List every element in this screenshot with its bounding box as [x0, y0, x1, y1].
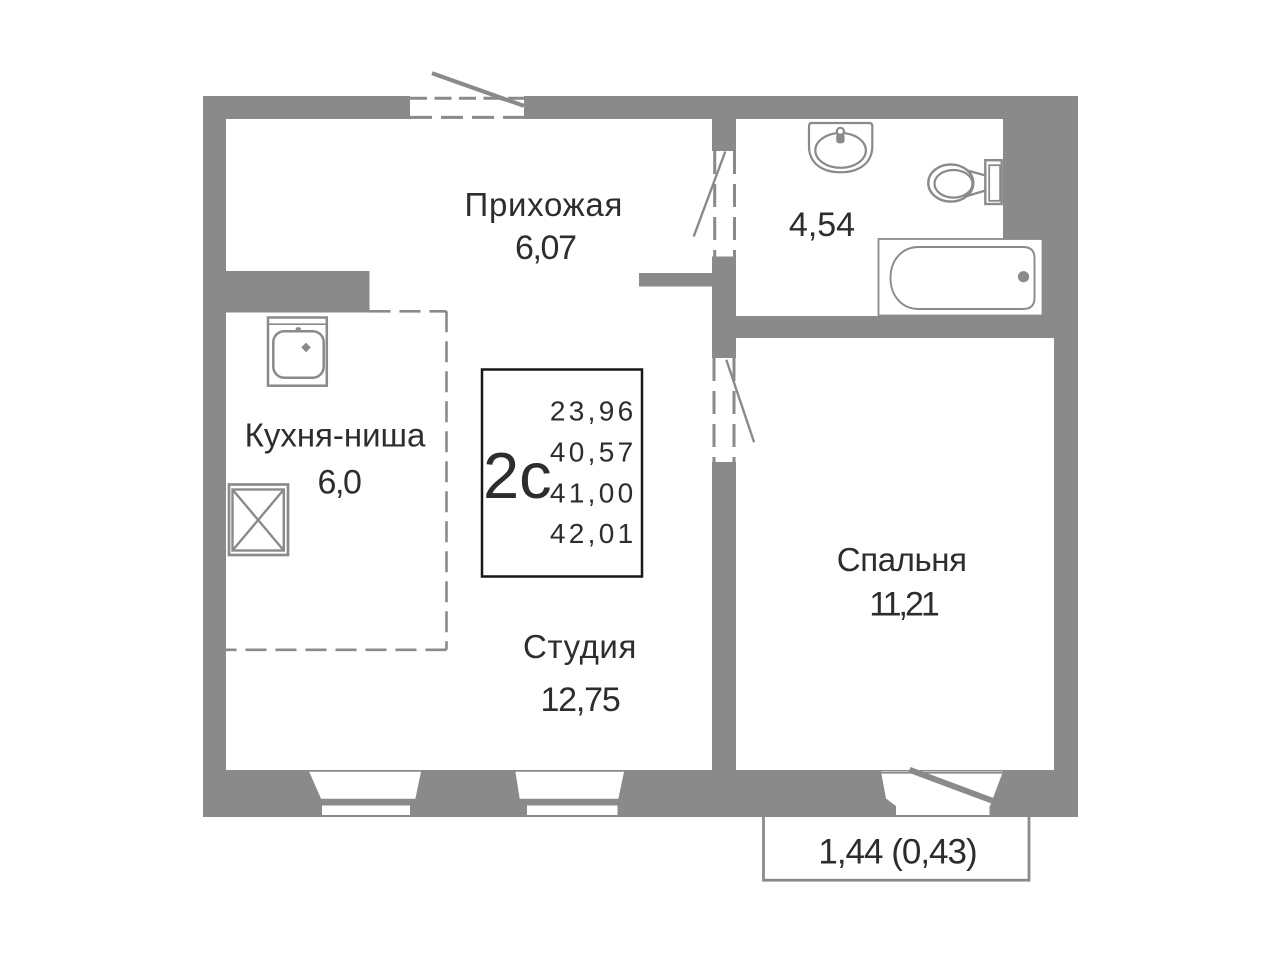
svg-text:1,44 (0,43): 1,44 (0,43)	[818, 832, 976, 871]
svg-text:41,00: 41,00	[550, 477, 637, 508]
svg-text:Спальня: Спальня	[837, 541, 967, 578]
svg-text:40,57: 40,57	[550, 436, 637, 467]
svg-text:Кухня-ниша: Кухня-ниша	[245, 416, 426, 453]
svg-text:4,54: 4,54	[789, 206, 855, 244]
svg-text:Прихожая: Прихожая	[465, 186, 624, 223]
svg-text:Студия: Студия	[523, 628, 637, 665]
svg-text:6,07: 6,07	[515, 229, 576, 267]
svg-text:2с: 2с	[483, 439, 552, 512]
svg-text:6,0: 6,0	[317, 464, 361, 502]
svg-text:12,75: 12,75	[540, 681, 619, 719]
svg-text:11,21: 11,21	[869, 585, 939, 623]
svg-text:23,96: 23,96	[550, 395, 637, 426]
svg-text:42,01: 42,01	[550, 518, 637, 549]
